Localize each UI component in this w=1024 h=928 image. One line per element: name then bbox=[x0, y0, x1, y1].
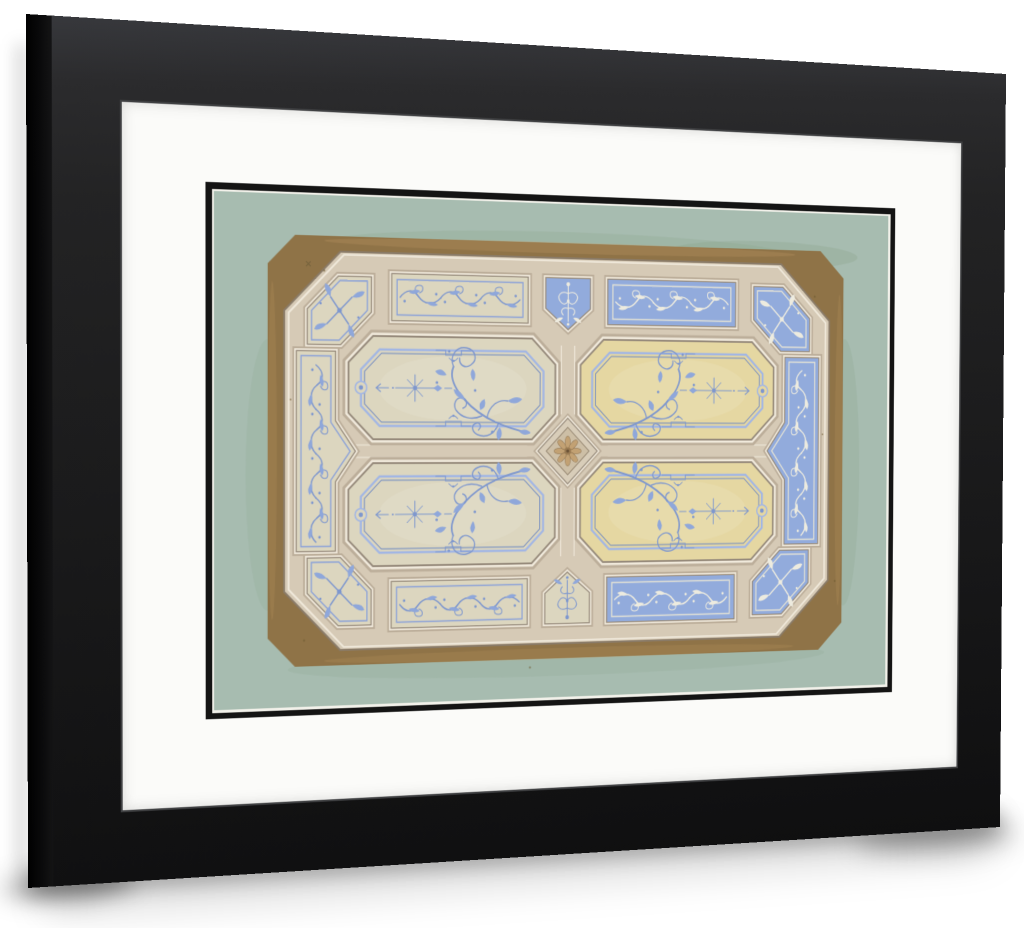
mat-board bbox=[122, 102, 961, 811]
coffer-top-left bbox=[349, 337, 554, 439]
fillet-inner-line bbox=[212, 188, 891, 712]
coffer-bottom-left bbox=[349, 464, 554, 566]
framed-print bbox=[26, 14, 1006, 888]
ceiling-design-svg bbox=[214, 191, 888, 710]
picture-frame bbox=[52, 16, 1006, 887]
rosette-flower bbox=[554, 436, 581, 466]
frame-side-panel bbox=[26, 14, 53, 888]
product-photo bbox=[0, 0, 1024, 928]
artwork bbox=[214, 191, 888, 710]
fillet-border bbox=[205, 182, 895, 720]
